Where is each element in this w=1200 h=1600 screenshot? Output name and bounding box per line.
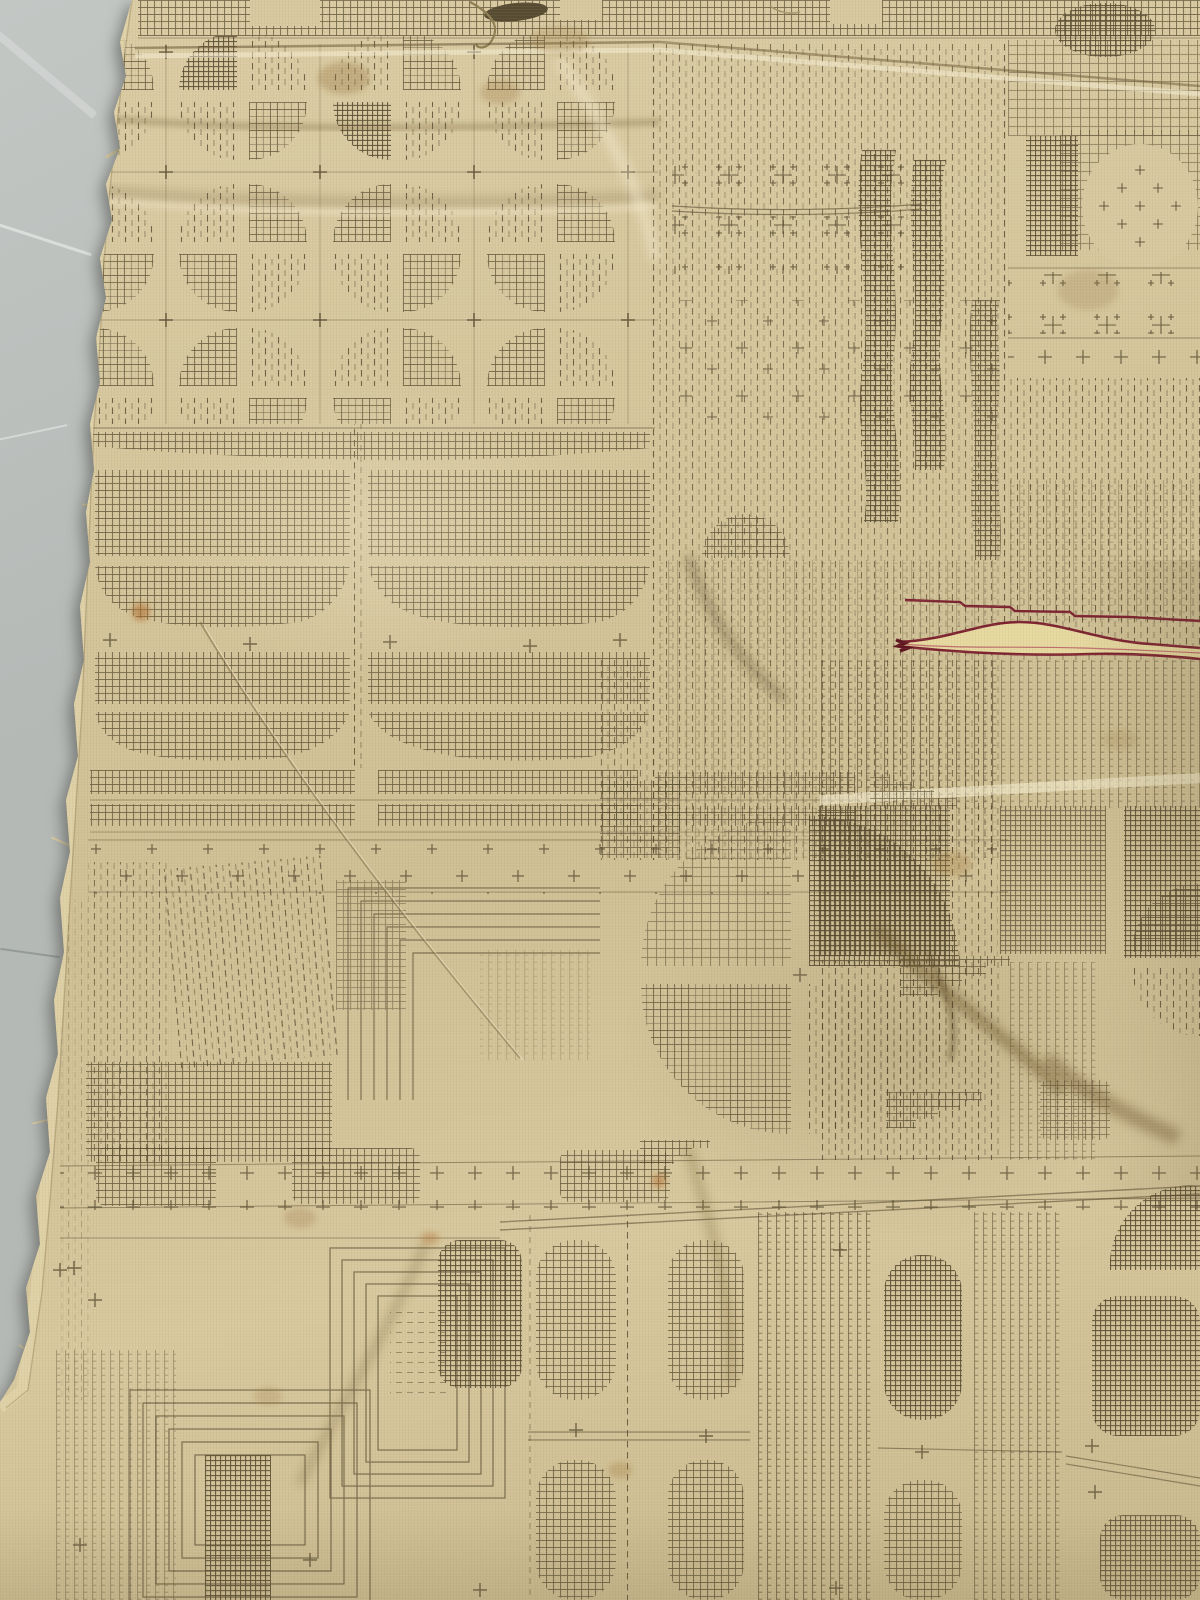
right-top-panel	[1008, 40, 1200, 660]
left-dash-columns	[58, 855, 339, 1400]
maze-corner-panel	[336, 880, 600, 1100]
fabric-swatch	[0, 0, 1200, 1600]
awning-rows	[88, 424, 655, 768]
photo-stage	[0, 0, 1200, 1600]
bottom-maze-panel	[53, 1238, 505, 1600]
oval-columns	[438, 1185, 1200, 1600]
orange-stain	[132, 603, 150, 621]
fabric-weave-art	[0, 0, 1200, 1600]
fabric-shadow-wrap	[0, 0, 1200, 1600]
